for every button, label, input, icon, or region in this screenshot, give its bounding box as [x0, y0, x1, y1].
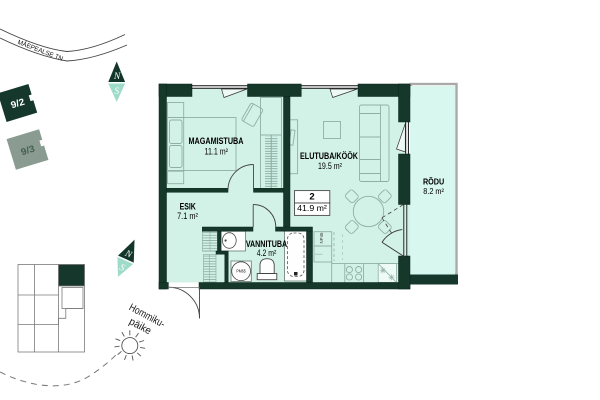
svg-text:ELUTUBA/KÖÖK: ELUTUBA/KÖÖK — [300, 151, 358, 161]
svg-text:S: S — [114, 87, 119, 97]
svg-text:PM65: PM65 — [236, 269, 246, 274]
svg-text:8.2 m²: 8.2 m² — [423, 186, 444, 196]
svg-text:MAGAMISTUBA: MAGAMISTUBA — [189, 136, 244, 146]
svg-text:N: N — [113, 72, 121, 82]
svg-text:2: 2 — [309, 192, 314, 203]
svg-text:41.9 m²: 41.9 m² — [297, 203, 327, 213]
svg-text:7.1 m²: 7.1 m² — [177, 211, 198, 221]
svg-text:19.5 m²: 19.5 m² — [318, 161, 342, 171]
svg-text:11.1 m²: 11.1 m² — [205, 147, 229, 157]
svg-text:4.2 m²: 4.2 m² — [257, 248, 277, 258]
svg-text:NP45: NP45 — [319, 232, 324, 244]
